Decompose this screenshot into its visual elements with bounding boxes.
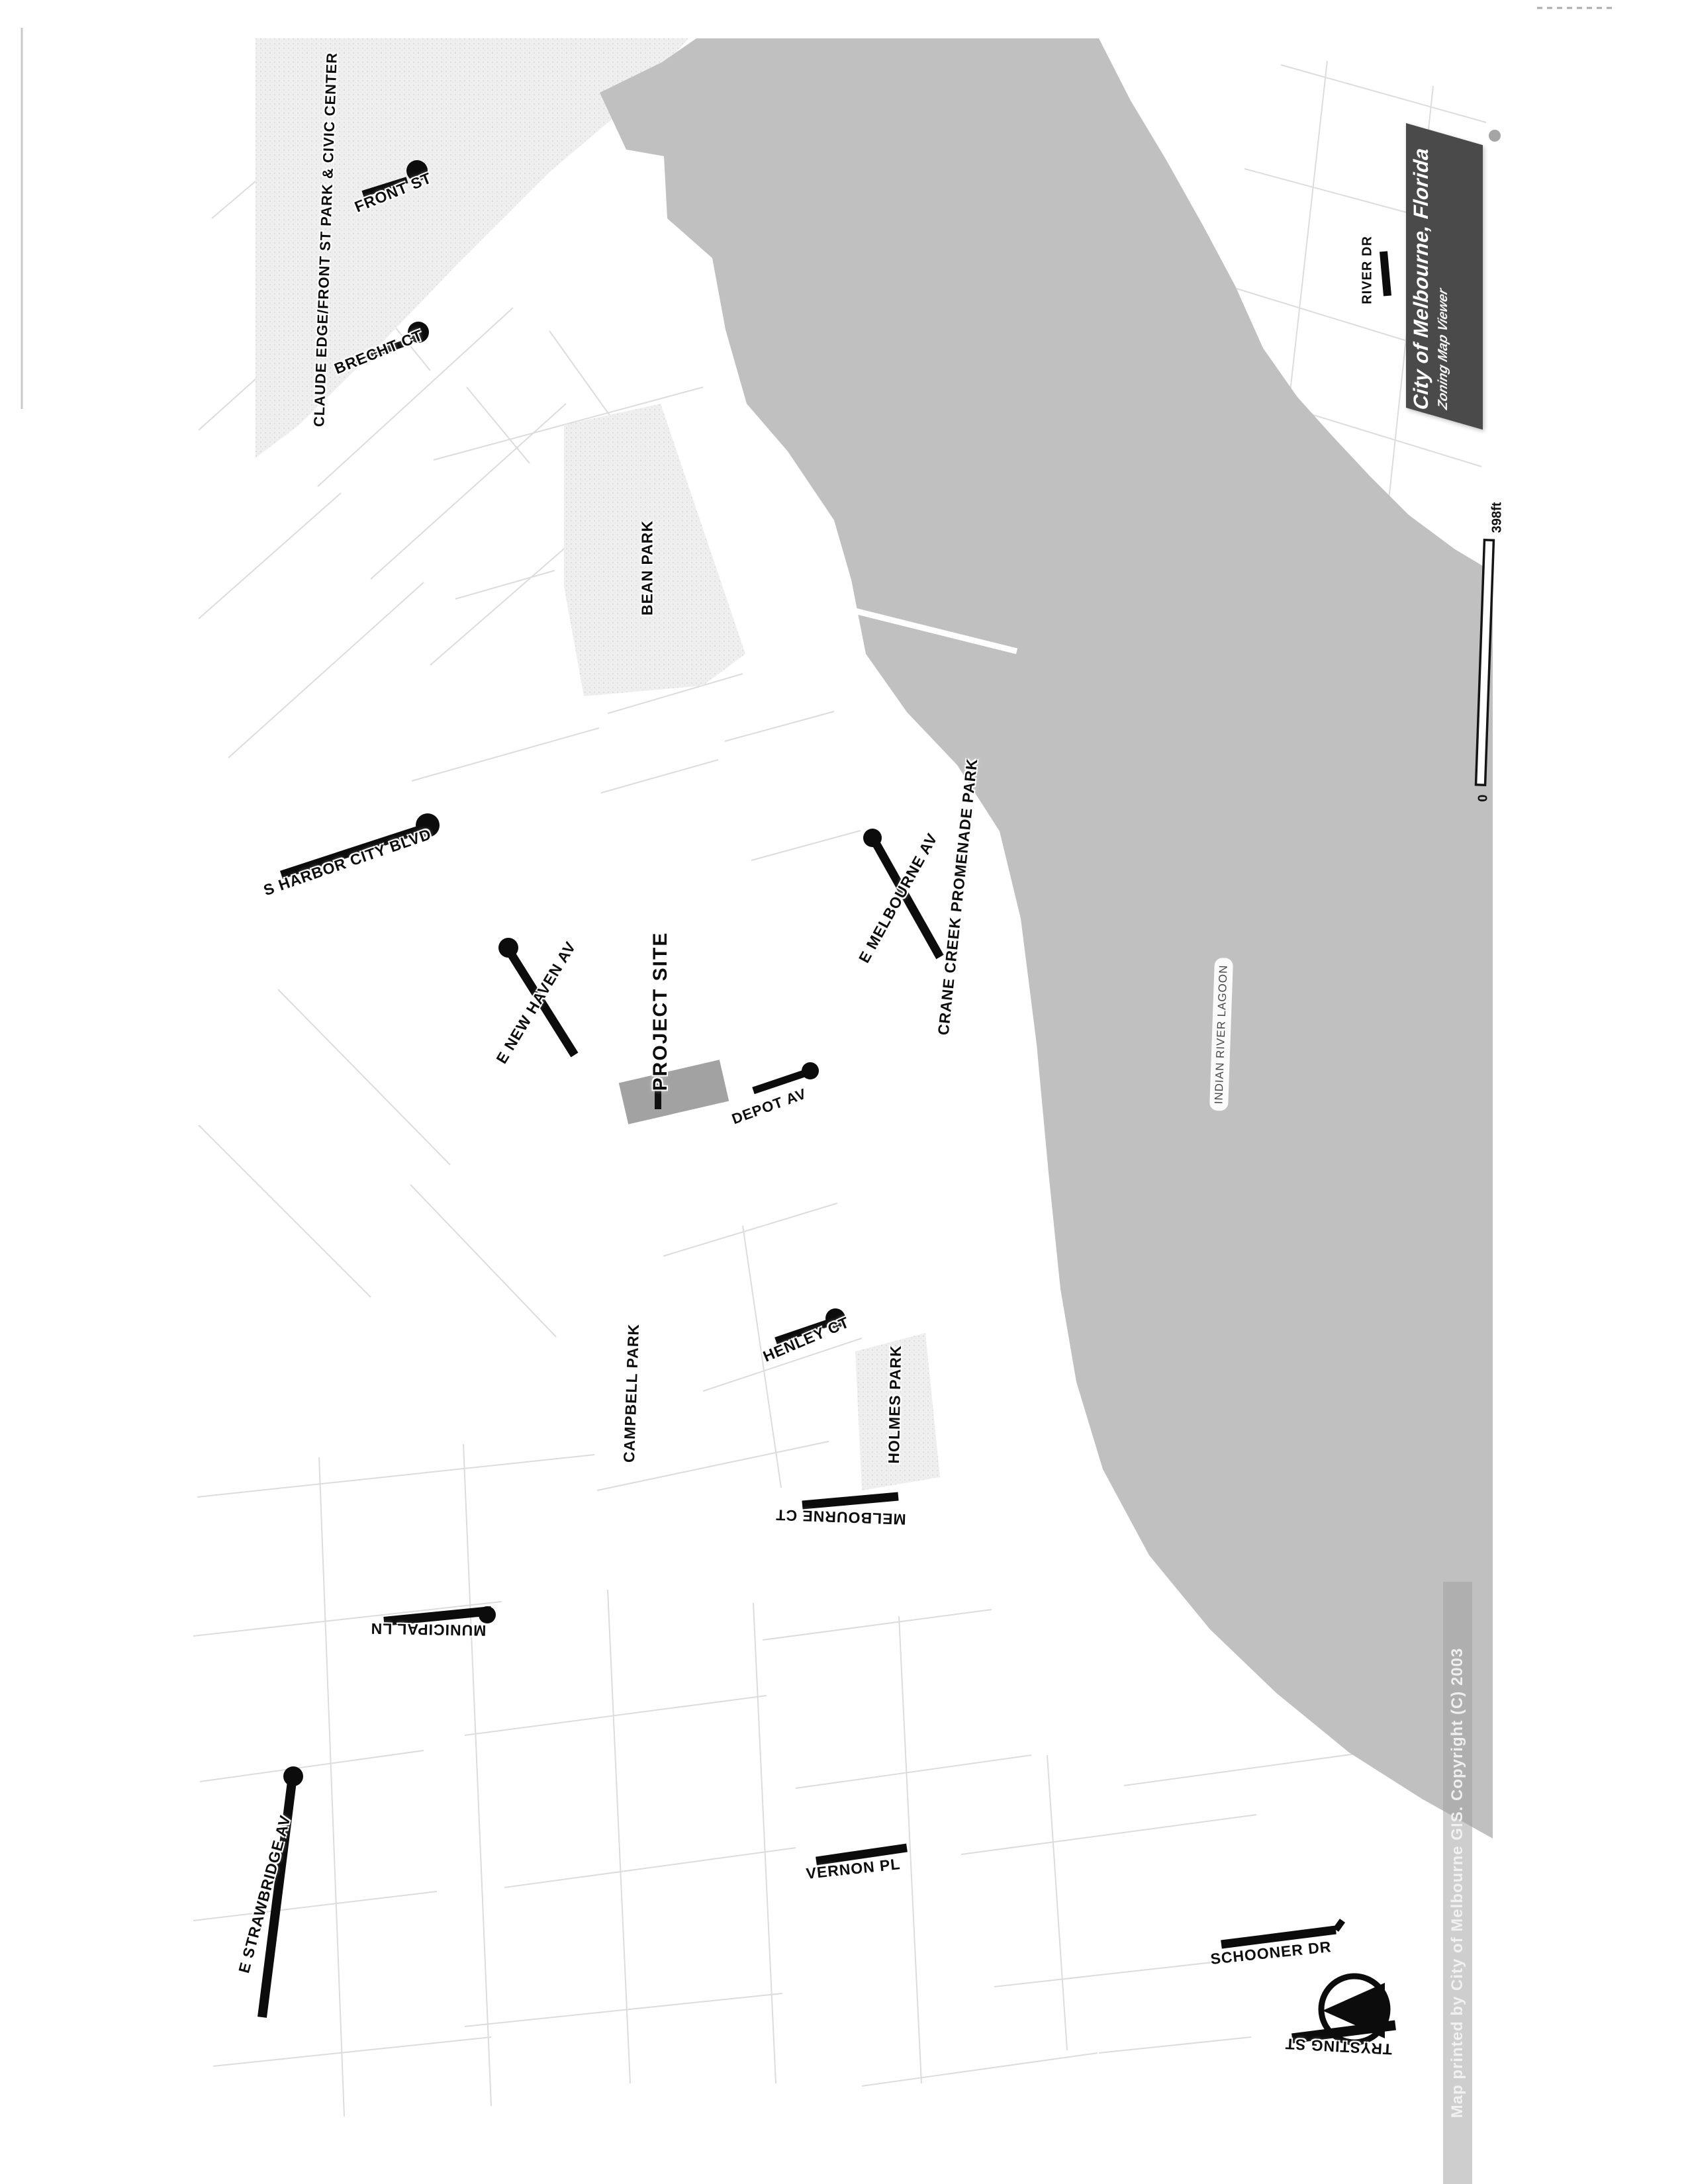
e-new-haven-av-blob (498, 938, 518, 958)
label-municipal-ln: MUNICIPAL LN (370, 1619, 486, 1639)
e-melbourne-av-blob (863, 829, 882, 847)
map-title-block: City of Melbourne, Florida Zoning Map Vi… (1406, 123, 1483, 430)
label-project-site: PROJECT SITE (649, 932, 672, 1091)
depot-av-blob (802, 1062, 819, 1079)
schooner-dr-hook (1336, 1921, 1342, 1930)
map-title: City of Melbourne, Florida (1408, 125, 1434, 413)
label-river-dr: RIVER DR (1360, 236, 1376, 304)
melbourne-ct-line (802, 1496, 898, 1505)
river-dr-line (1383, 251, 1387, 296)
scanned-zoning-map-page: CLAUDE EDGE/FRONT ST PARK & CIVIC CENTER… (0, 0, 1688, 2184)
scale-min-label: 0 (1476, 794, 1491, 801)
copyright-watermark: Map printed by City of Melbourne GIS. Co… (1443, 1582, 1472, 2184)
scale-max-label: 398ft (1490, 502, 1505, 533)
label-holmes-park: HOLMES PARK (885, 1345, 905, 1464)
e-strawbridge-av-blob (283, 1766, 303, 1786)
map-subtitle: Zoning Map Viewer (1434, 132, 1452, 418)
project-site-shape (619, 1060, 729, 1124)
map-title-inner: City of Melbourne, Florida Zoning Map Vi… (1408, 125, 1481, 428)
water-body (600, 38, 1493, 1839)
pushpin-dot (1489, 130, 1501, 142)
label-bean-park: BEAN PARK (639, 520, 657, 615)
